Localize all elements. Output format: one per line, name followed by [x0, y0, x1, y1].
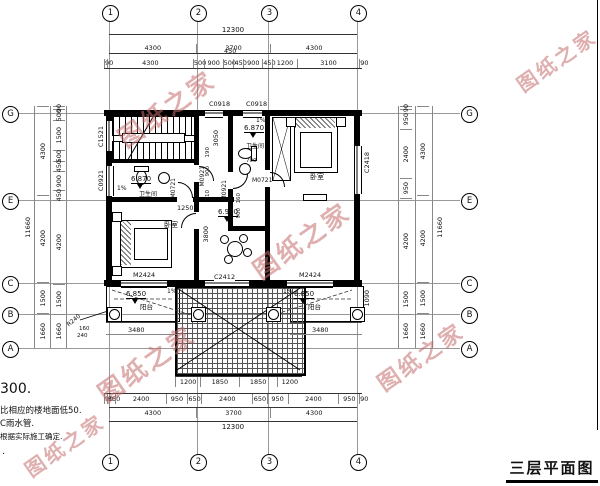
window-label: C2412 — [214, 273, 235, 281]
room-label-bedroom-2: 卧室 — [310, 172, 324, 182]
note-line-1: 300. — [0, 381, 31, 397]
chair-icon — [224, 255, 233, 264]
balcony-rail — [106, 322, 178, 323]
dim-line — [34, 106, 35, 348]
window-label: C2418 — [363, 152, 371, 173]
note-line-2: 比相应的楼地面低50. — [0, 404, 82, 416]
door-swing-m0721-1 — [178, 182, 193, 198]
grid-bubble-left-c: C — [2, 276, 19, 293]
grid-bubble-right-g: G — [461, 106, 478, 123]
dim-top-total: 12300 — [109, 26, 357, 35]
level-triangle — [250, 133, 256, 138]
dim-line — [415, 106, 416, 348]
dim-row-roof: 1200185018501200 — [175, 376, 302, 389]
column-circle — [352, 309, 363, 320]
wall-interior-grid3 — [265, 114, 270, 282]
slope-label: 1% — [256, 117, 266, 124]
grid-bubble-right-e: E — [461, 193, 478, 210]
grid-bubble-left-b: B — [2, 307, 19, 324]
window-label: C0921 — [97, 170, 105, 191]
chair-icon — [243, 248, 252, 257]
window-label: C1521 — [97, 126, 105, 147]
dim-line — [50, 106, 51, 348]
nightstand-icon — [286, 117, 296, 127]
dim-line — [398, 106, 399, 348]
dim-top-450: 450 — [224, 47, 236, 55]
grid-bubble-bottom-4: 4 — [350, 454, 367, 471]
dim-small: 240 — [77, 333, 88, 339]
dim-col-left-mid: 4300420015001660 — [37, 106, 49, 348]
door-swing-m0921-2 — [233, 174, 248, 189]
wall-exterior-right — [354, 110, 360, 286]
dim-row-bottom-major: 430037004300 — [109, 407, 357, 420]
dim-line — [290, 334, 362, 335]
note-line-3: C雨水管. — [0, 417, 34, 429]
grid-bubble-left-g: G — [2, 106, 19, 123]
grid-bubble-top-2: 2 — [190, 5, 207, 22]
room-label-bath-2: 卫生间 — [246, 141, 264, 150]
dim-bath-depth: 3050 — [212, 130, 220, 147]
bed-pillow — [295, 118, 335, 128]
dim-row-bottom-detail: 9035024009506502400650950240095090 — [104, 393, 362, 406]
dim-line — [66, 106, 67, 348]
dim-col-left-inner: 905001500500450900450420015001660 — [53, 106, 65, 348]
dim-hall-depth: 3800 — [202, 226, 210, 243]
level-bath-1: 6.870 — [131, 175, 151, 184]
note-line-5: . — [2, 446, 5, 457]
dim-col-right-inner: 909502400950420015001660 — [400, 106, 412, 348]
level-triangle — [137, 184, 143, 189]
stair-flight-lower — [112, 141, 195, 161]
tv-bench-icon — [303, 194, 327, 201]
window-label: C0918 — [209, 100, 230, 108]
dim-line — [432, 106, 433, 348]
dim-left-total: 11660 — [22, 106, 34, 348]
bed-inner — [300, 132, 332, 168]
grid-bubble-bottom-1: 1 — [102, 454, 119, 471]
sink-icon — [158, 172, 170, 184]
grid-bubble-bottom-3: 3 — [261, 454, 278, 471]
chair-icon — [239, 234, 248, 243]
dim-small: 190 — [205, 147, 211, 158]
level-triangle — [300, 299, 306, 304]
nightstand-icon — [336, 117, 346, 127]
tiled-roof — [175, 286, 306, 376]
note-line-4: 根据实际施工确定. — [0, 431, 62, 442]
bed-pillow — [121, 221, 131, 265]
dim-line — [106, 334, 178, 335]
grid-bubble-left-e: E — [2, 193, 19, 210]
level-triangle — [132, 299, 138, 304]
dim-small: 160 — [236, 193, 242, 204]
dim-balcony-right: 3480 — [312, 326, 329, 334]
dim-bottom-total: 12300 — [109, 421, 357, 431]
grid-bubble-bottom-2: 2 — [190, 454, 207, 471]
dim-door-width: 700 — [246, 158, 257, 164]
dim-balcony-depth: 1090 — [363, 290, 371, 307]
watermark: 图纸之家 — [510, 21, 600, 98]
dim-balcony-left: 3480 — [128, 326, 145, 334]
nightstand-icon — [112, 266, 122, 276]
drawing-title: 三层平面图 — [506, 457, 598, 483]
door-label: M0721 — [170, 178, 177, 198]
dim-row-top-detail: 9043005009005004509004501200310090 — [104, 56, 362, 69]
column-circle — [193, 309, 204, 320]
window-c0921 — [106, 166, 114, 196]
room-label-bath-1: 卫生间 — [139, 189, 157, 198]
dim-small: 900 — [205, 166, 211, 177]
level-bath-2: 6.870 — [244, 124, 264, 133]
grid-bubble-right-b: B — [461, 307, 478, 324]
sink-icon — [239, 163, 251, 175]
grid-bubble-top-4: 4 — [350, 5, 367, 22]
room-label-balcony-2: 阳台 — [308, 301, 321, 311]
window-c0918-1 — [205, 110, 223, 118]
sheet-border — [597, 0, 598, 430]
level-balcony-2: 6.850 — [294, 290, 314, 299]
slope-label: 1% — [167, 288, 177, 295]
grid-bubble-left-a: A — [2, 341, 19, 358]
slope-label: 1% — [117, 185, 127, 192]
column-circle — [268, 309, 279, 320]
nightstand-icon — [112, 212, 122, 222]
stair-rail — [122, 133, 185, 143]
toilet-tank — [134, 166, 149, 172]
chair-icon — [220, 235, 229, 244]
grid-bubble-top-1: 1 — [102, 5, 119, 22]
door-swing-bedroom1 — [181, 213, 196, 228]
door-label: M2424 — [299, 271, 321, 279]
room-label-bedroom-1: 卧室 — [164, 220, 178, 230]
bed-inner — [134, 228, 168, 260]
room-label-balcony-1: 阳台 — [140, 301, 153, 311]
slope-label: 1% — [283, 288, 293, 295]
door-label: M0921 — [221, 180, 228, 200]
grid-bubble-right-c: C — [461, 276, 478, 293]
grid-bubble-top-3: 3 — [261, 5, 278, 22]
column-circle — [109, 309, 120, 320]
dim-small: 710 — [205, 190, 211, 201]
level-balcony-1: 6.850 — [126, 290, 146, 299]
window-c2418 — [354, 146, 362, 194]
dim-right-total: 11660 — [434, 106, 446, 348]
dim-hall-width: 1250 — [177, 204, 194, 212]
dim-small: 160 — [79, 326, 90, 332]
dim-small: 900 — [236, 208, 242, 219]
level-triangle — [224, 217, 230, 222]
dim-col-right-mid: 4300420015001660 — [417, 106, 429, 348]
door-label: M0721 — [252, 177, 272, 184]
wall-interior-bath2-bottom — [228, 226, 270, 231]
grid-bubble-right-a: A — [461, 341, 478, 358]
door-label: M2424 — [133, 271, 155, 279]
window-label: C0918 — [246, 100, 267, 108]
